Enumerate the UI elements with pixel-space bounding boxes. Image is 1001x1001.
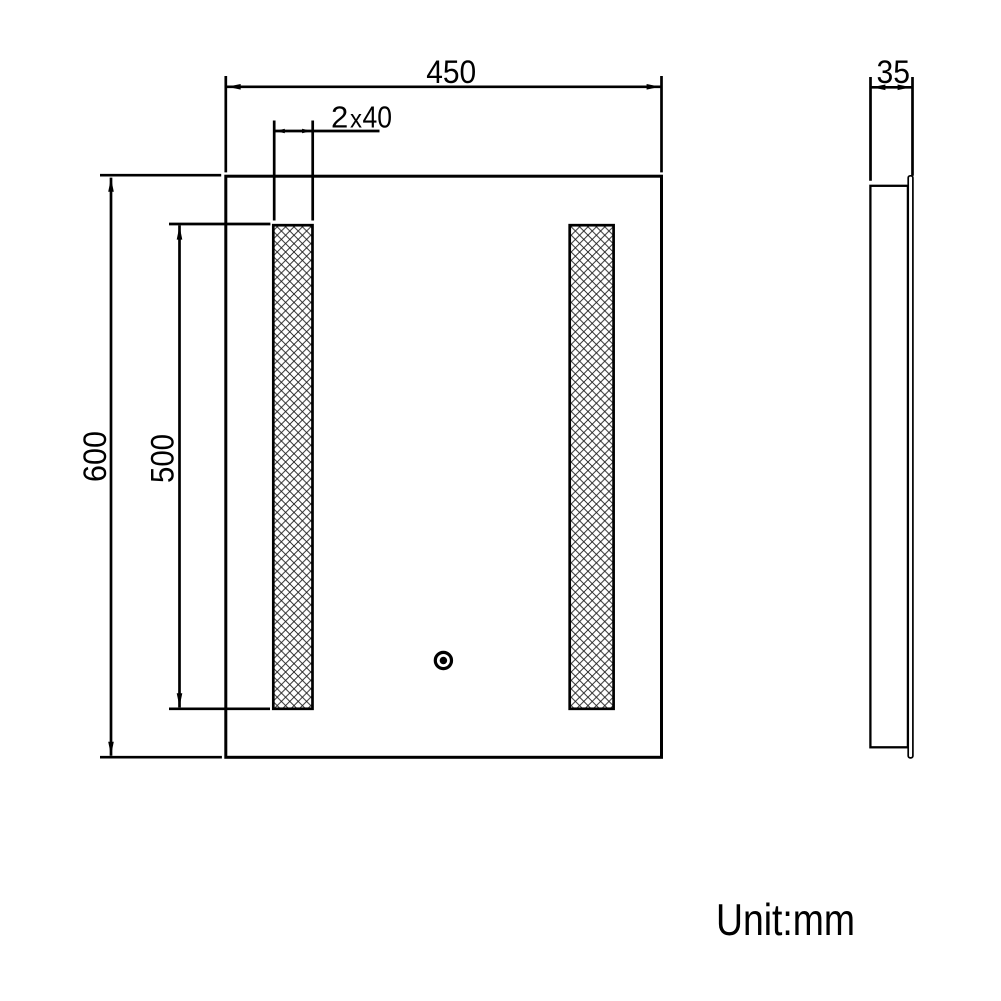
svg-text:x: x [350, 106, 362, 134]
svg-text:35: 35 [876, 54, 910, 90]
svg-text:500: 500 [144, 434, 180, 483]
svg-text:Unit:mm: Unit:mm [716, 896, 855, 945]
svg-text:450: 450 [426, 54, 476, 90]
svg-text:40: 40 [363, 100, 393, 135]
svg-text:2: 2 [331, 100, 348, 135]
svg-text:600: 600 [77, 431, 113, 482]
